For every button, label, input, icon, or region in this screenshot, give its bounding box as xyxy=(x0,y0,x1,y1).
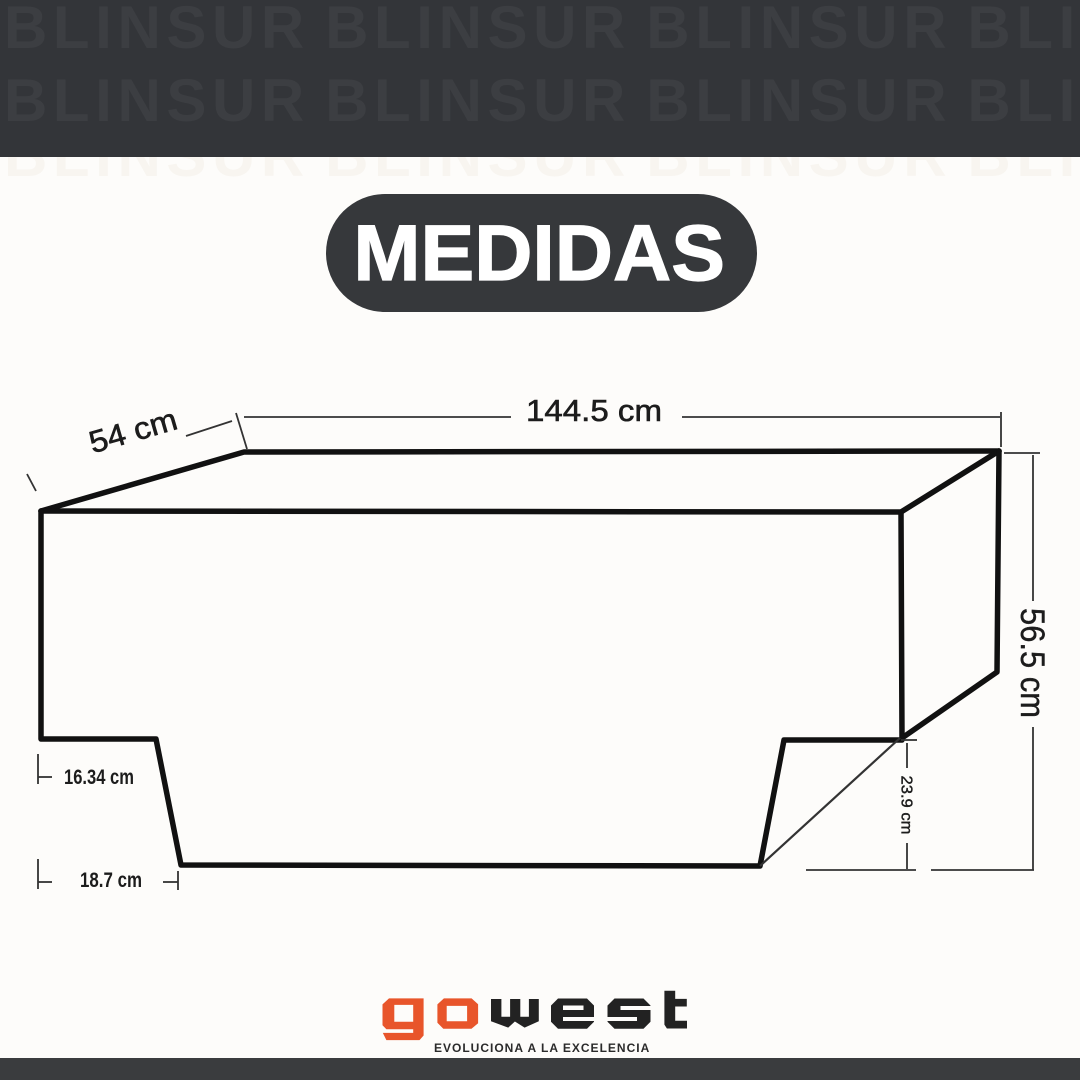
svg-text:18.7 cm: 18.7 cm xyxy=(80,869,142,892)
svg-text:54 cm: 54 cm xyxy=(85,402,181,461)
svg-text:56.5 cm: 56.5 cm xyxy=(1013,608,1051,718)
svg-text:23.9 cm: 23.9 cm xyxy=(898,776,915,835)
svg-text:144.5 cm: 144.5 cm xyxy=(526,393,662,428)
svg-text:16.34 cm: 16.34 cm xyxy=(64,766,134,789)
